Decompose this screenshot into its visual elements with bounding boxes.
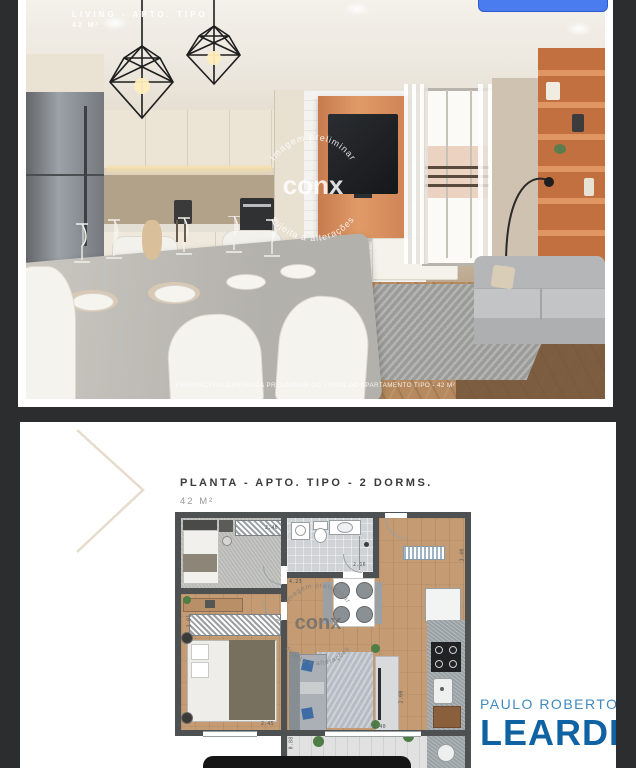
dorm2-window	[203, 731, 257, 737]
dim-label: 2.40	[265, 525, 278, 531]
burner	[449, 660, 457, 668]
plan-card: PLANTA - APTO. TIPO - 2 DORMS. 42 M²	[20, 422, 616, 768]
floor-plan[interactable]: 2.40 1.18 4.23 2.16 3.40 3.01 2.45 2.00 …	[175, 512, 471, 768]
shelf-board	[538, 102, 605, 108]
dining-chair-front	[26, 266, 76, 399]
living-render-photo[interactable]: Imagem preliminar sujeita a alterações c…	[26, 0, 605, 399]
broker-logo-line1: PAULO ROBERTO	[480, 696, 616, 712]
plan-title: PLANTA - APTO. TIPO - 2 DORMS.	[180, 477, 433, 489]
sofa-throw	[300, 682, 324, 694]
gallery-button[interactable]	[478, 0, 608, 12]
sink-faucet	[440, 687, 444, 691]
svg-text:sujeita a alterações: sujeita a alterações	[270, 214, 357, 243]
washer-door	[295, 525, 306, 536]
watermark-arc-top: Imagem preliminar	[284, 582, 351, 605]
dim-label: 2.16	[353, 562, 366, 568]
laundry-tub	[437, 744, 455, 762]
ceiling-spotlight	[566, 22, 592, 36]
sheer-curtain-left	[404, 84, 428, 264]
shelf-object	[584, 178, 594, 196]
plan-area: 42 M²	[180, 496, 214, 507]
burner	[435, 646, 443, 654]
sofa-pillow-blue	[301, 707, 314, 720]
sideboard-hatch	[403, 546, 445, 560]
dim-label: 1.18	[282, 547, 288, 560]
wall-dorm-divider	[181, 588, 281, 594]
burner	[449, 646, 457, 654]
chevron-right-decoration	[75, 428, 170, 558]
dorm1-bed-headboard	[183, 520, 217, 530]
dim-label: 2.45	[261, 721, 274, 727]
bath-sink	[337, 522, 353, 533]
photo-overlay-title: LIVING - APTO. TIPO	[72, 10, 208, 19]
watermark-arc-bottom: sujeita a alterações	[284, 645, 351, 667]
svg-text:Imagem preliminar: Imagem preliminar	[268, 132, 358, 163]
svg-text:sujeita a alterações: sujeita a alterações	[284, 645, 351, 667]
conx-watermark-plan: Imagem preliminar sujeita a alterações c…	[268, 572, 368, 672]
sofa-base	[474, 318, 605, 344]
ceiling-spotlight	[344, 2, 370, 16]
shelf-object	[546, 82, 560, 100]
plan-bottom-bar	[203, 756, 411, 768]
photo-overlay-area: 42 M²	[72, 22, 100, 29]
candle-stick	[176, 220, 178, 242]
watermark-brand: conx	[283, 170, 344, 200]
dorm2-plant	[183, 596, 191, 604]
wall-left	[175, 512, 181, 736]
candle-stick	[184, 224, 186, 242]
living-plant	[371, 644, 380, 653]
dorm2-pillow	[191, 644, 209, 660]
sofa-pillow	[491, 265, 516, 290]
toilet-bowl	[314, 528, 327, 543]
plate	[154, 285, 196, 303]
dim-label: 3.01	[186, 615, 192, 628]
dorm1-bed-blanket	[183, 554, 217, 572]
wall-bath-living	[373, 512, 379, 578]
svg-text:Imagem preliminar: Imagem preliminar	[284, 582, 351, 605]
dorm1-stool	[222, 536, 232, 546]
dorm2-pot	[181, 632, 193, 644]
sofa-seam	[540, 288, 542, 320]
dorm2-pillow	[191, 662, 209, 678]
shelf-board	[538, 70, 605, 76]
shelf-object	[572, 114, 584, 132]
fridge-divider	[26, 174, 104, 176]
table-vase	[142, 220, 162, 260]
watermark-brand: conx	[295, 612, 342, 634]
kitchen-cabinet-wood	[433, 706, 461, 728]
shower-head	[364, 542, 369, 547]
plan-fridge	[425, 588, 461, 622]
plan-sink	[433, 678, 453, 704]
photo-caption: PERSPECTIVA ILUSTRADA PRELIMINAR DO LIVI…	[26, 382, 605, 389]
dim-label: 2.00	[398, 691, 404, 704]
plate	[72, 293, 114, 311]
dorm2-pot	[181, 712, 193, 724]
broker-logo-line2: LEARDI	[480, 712, 616, 754]
watermark-arc-bottom: sujeita a alterações	[270, 214, 357, 243]
sliding-door	[325, 731, 421, 737]
dorm2-laptop	[205, 600, 215, 608]
plan-tv	[378, 668, 381, 720]
dim-label: 1.40	[373, 724, 386, 730]
dim-label: 3.40	[459, 549, 465, 562]
wall-top	[175, 512, 471, 518]
floor-lamp	[492, 138, 562, 268]
dorm1-dresser	[219, 520, 233, 532]
terrace-plant	[313, 736, 324, 747]
watermark-arc-top: Imagem preliminar	[268, 132, 358, 163]
photo-card: Imagem preliminar sujeita a alterações c…	[18, 0, 613, 407]
burner	[435, 660, 443, 668]
dim-label: 0.88	[288, 737, 294, 750]
conx-watermark: Imagem preliminar sujeita a alterações c…	[248, 120, 378, 250]
broker-logo: PAULO ROBERTO LEARDI	[480, 696, 616, 754]
